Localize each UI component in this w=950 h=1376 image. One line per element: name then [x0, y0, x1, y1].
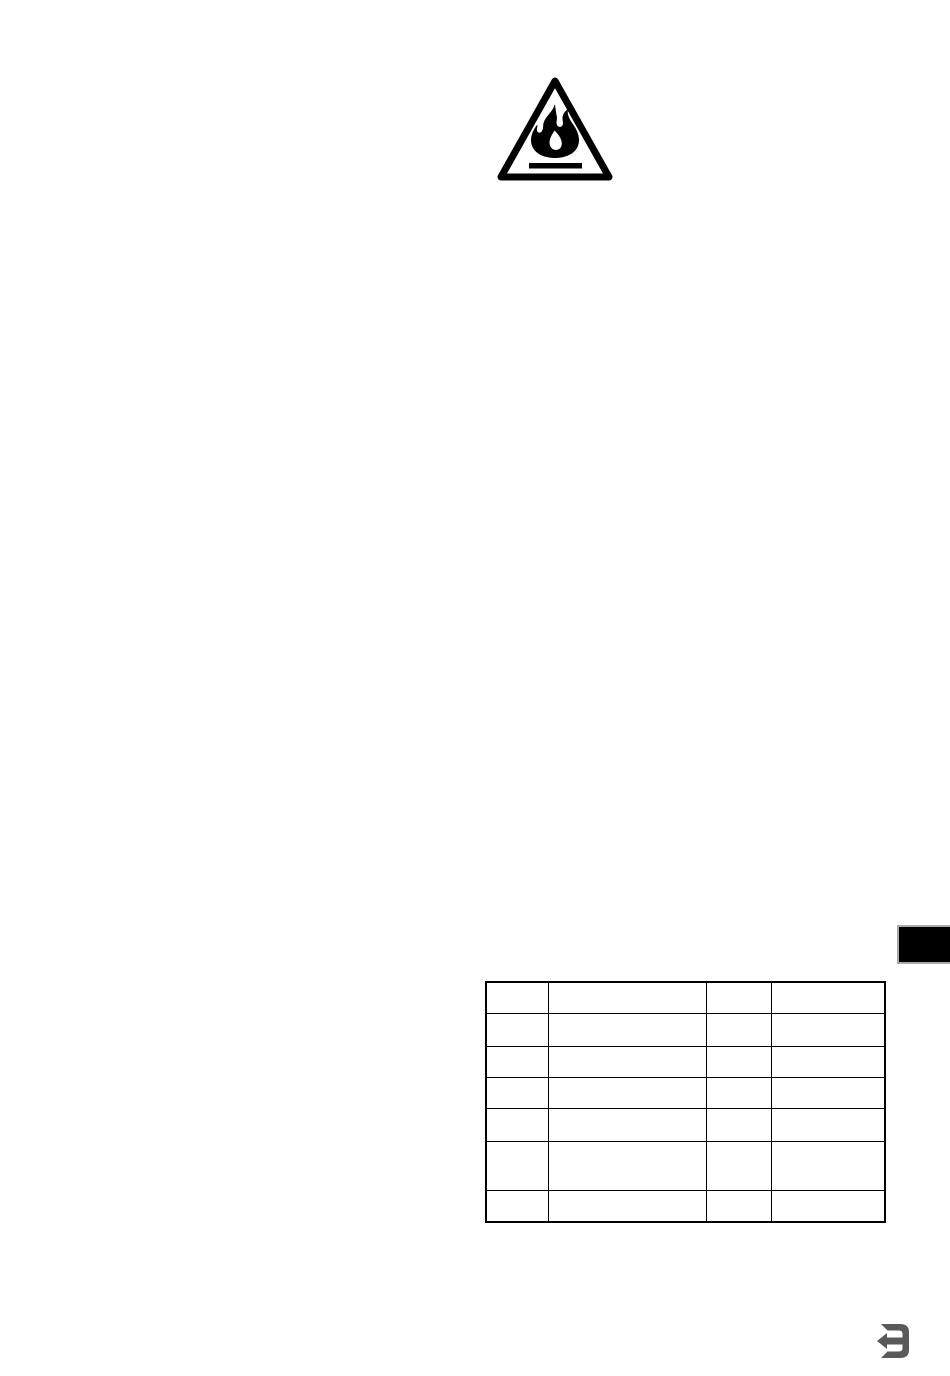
table-cell: [548, 1047, 706, 1078]
table-row: [486, 1078, 885, 1109]
table-cell: [706, 1047, 771, 1078]
table-cell: [771, 1191, 885, 1223]
table-cell: [486, 1191, 548, 1223]
table-cell: [706, 1191, 771, 1223]
back-arrow-icon: [877, 1333, 895, 1349]
table-cell: [771, 1047, 885, 1078]
chapter-tab-marker: [897, 925, 950, 964]
table-cell: [486, 1014, 548, 1047]
table-row: [486, 1047, 885, 1078]
table-cell: [706, 1078, 771, 1109]
table-cell: [548, 982, 706, 1014]
table-cell: [771, 1078, 885, 1109]
table-cell: [486, 1078, 548, 1109]
table-row: [486, 982, 885, 1014]
table-cell: [771, 1142, 885, 1191]
table-row: [486, 1191, 885, 1223]
table-cell: [706, 1109, 771, 1142]
manual-page: [0, 0, 950, 1376]
table-row: [486, 1142, 885, 1191]
table-cell: [548, 1078, 706, 1109]
table-row: [486, 1109, 885, 1142]
table-cell: [486, 982, 548, 1014]
table-cell: [771, 982, 885, 1014]
table-cell: [548, 1191, 706, 1223]
table-row: [486, 1014, 885, 1047]
table-cell: [771, 1109, 885, 1142]
page-number-3-back-arrow-icon: [874, 1319, 918, 1363]
table-cell: [706, 1142, 771, 1191]
page-number-3-icon: [874, 1319, 918, 1363]
specifications-table: [485, 981, 886, 1223]
table-cell: [706, 1014, 771, 1047]
table-cell: [486, 1109, 548, 1142]
table-cell: [486, 1047, 548, 1078]
table-cell: [548, 1109, 706, 1142]
table-cell: [771, 1014, 885, 1047]
table-cell: [486, 1142, 548, 1191]
flammable-warning-icon: [496, 75, 614, 183]
table-cell: [548, 1142, 706, 1191]
table-cell: [548, 1014, 706, 1047]
table-cell: [706, 982, 771, 1014]
flame-base-bar: [529, 163, 582, 169]
flammable-warning-triangle-icon: [496, 75, 614, 183]
